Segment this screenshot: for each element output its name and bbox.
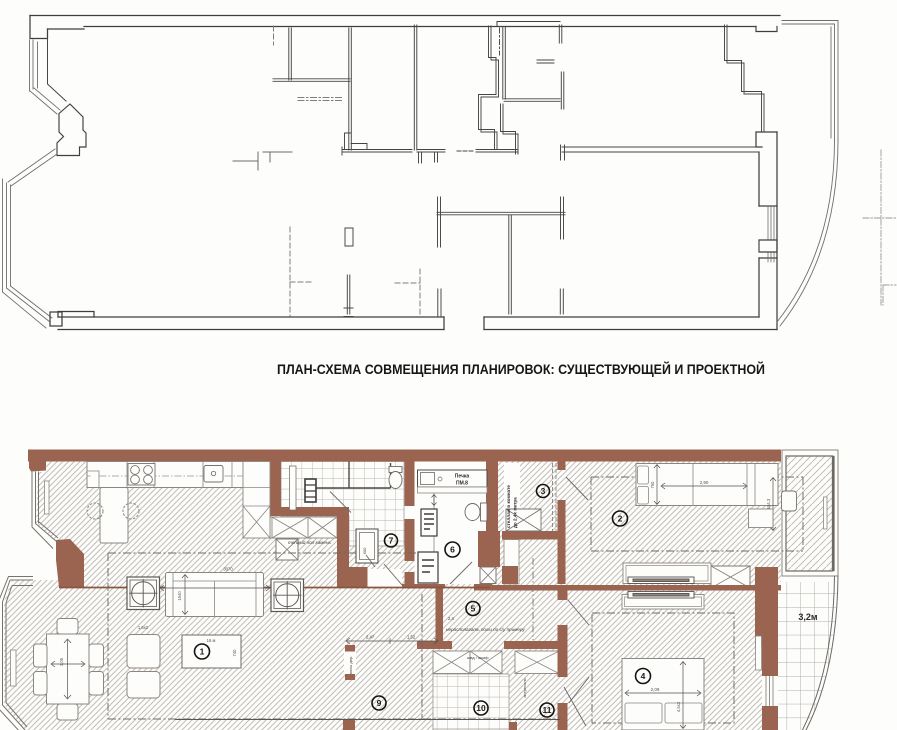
svg-text:3: 3 xyxy=(541,486,546,496)
svg-text:3070: 3070 xyxy=(223,567,233,572)
svg-text:600: 600 xyxy=(362,547,367,554)
svg-text:740: 740 xyxy=(232,649,237,657)
svg-text:теплый пол камень: теплый пол камень xyxy=(288,539,332,545)
svg-text:10: 10 xyxy=(476,703,486,713)
svg-text:ПЛАН-СХЕМА СОВМЕЩЕНИЯ ПЛАНИРОВ: ПЛАН-СХЕМА СОВМЕЩЕНИЯ ПЛАНИРОВОК: СУЩЕСТ… xyxy=(277,362,765,377)
svg-text:2,47: 2,47 xyxy=(366,635,375,640)
svg-text:2,90: 2,90 xyxy=(700,480,709,485)
svg-text:до 2,4х метра: до 2,4х метра xyxy=(513,497,518,528)
svg-text:1: 1 xyxy=(200,647,205,657)
svg-text:7: 7 xyxy=(389,536,394,546)
svg-text:1,52: 1,52 xyxy=(407,635,416,640)
svg-text:4,5х3: 4,5х3 xyxy=(676,701,681,712)
svg-text:ПМ.8: ПМ.8 xyxy=(456,481,468,487)
svg-text:750: 750 xyxy=(650,481,655,489)
svg-text:полы дер.: полы дер. xyxy=(348,656,353,675)
svg-text:швд / шкаф: швд / шкаф xyxy=(467,655,489,660)
svg-text:2: 2 xyxy=(618,514,623,524)
svg-text:стеллаж в комнате: стеллаж в комнате xyxy=(506,485,511,528)
svg-text:6: 6 xyxy=(450,545,455,555)
svg-text:2,09: 2,09 xyxy=(651,687,660,692)
svg-text:нерасполагать полы по с/у прим: нерасполагать полы по с/у примеру xyxy=(446,627,525,632)
svg-text:11: 11 xyxy=(543,705,552,715)
svg-text:4: 4 xyxy=(641,671,646,681)
svg-text:Печка: Печка xyxy=(455,474,470,480)
svg-text:3,2м: 3,2м xyxy=(798,612,818,622)
svg-text:1,5х2: 1,5х2 xyxy=(138,625,149,630)
svg-text:2,4: 2,4 xyxy=(448,616,454,621)
svg-text:1,05: 1,05 xyxy=(59,657,64,666)
svg-text:9: 9 xyxy=(377,698,382,708)
svg-text:1540: 1540 xyxy=(177,591,182,601)
svg-text:5: 5 xyxy=(471,604,476,614)
svg-text:антресоль: антресоль xyxy=(522,678,527,697)
svg-text:154,3: 154,3 xyxy=(766,498,771,509)
svg-text:16 м: 16 м xyxy=(207,638,216,643)
